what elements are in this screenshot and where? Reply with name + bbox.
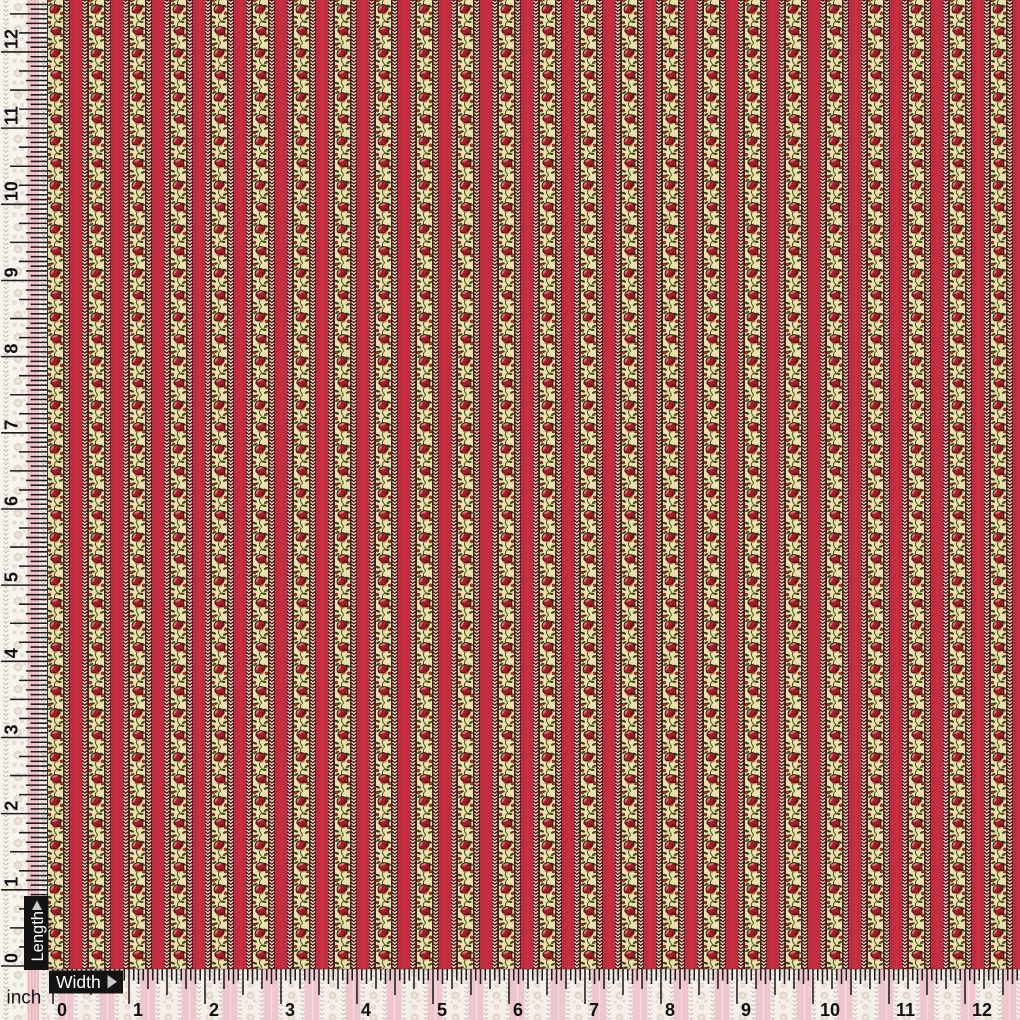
svg-text:12: 12	[2, 29, 22, 49]
svg-text:6: 6	[513, 1000, 523, 1020]
svg-text:8: 8	[665, 1000, 675, 1020]
svg-text:4: 4	[2, 648, 22, 658]
svg-text:7: 7	[2, 420, 22, 430]
svg-text:0: 0	[57, 1000, 67, 1020]
svg-text:12: 12	[972, 1000, 992, 1020]
svg-text:4: 4	[361, 1000, 371, 1020]
svg-text:inch: inch	[7, 988, 42, 1009]
svg-text:5: 5	[2, 572, 22, 582]
svg-text:9: 9	[2, 267, 22, 277]
svg-text:2: 2	[2, 801, 22, 811]
svg-text:10: 10	[820, 1000, 840, 1020]
svg-text:9: 9	[741, 1000, 751, 1020]
svg-text:Width: Width	[56, 972, 101, 992]
svg-text:2: 2	[209, 1000, 219, 1020]
svg-text:6: 6	[2, 496, 22, 506]
svg-text:11: 11	[2, 106, 22, 125]
svg-text:3: 3	[285, 1000, 295, 1020]
svg-text:1: 1	[133, 1000, 143, 1020]
svg-text:11: 11	[896, 1000, 915, 1020]
svg-text:1: 1	[2, 877, 22, 887]
svg-text:8: 8	[2, 344, 22, 354]
svg-text:7: 7	[589, 1000, 599, 1020]
svg-text:0: 0	[2, 953, 22, 963]
svg-text:Length: Length	[29, 911, 47, 961]
svg-text:5: 5	[437, 1000, 447, 1020]
svg-text:10: 10	[2, 181, 22, 201]
svg-text:3: 3	[2, 724, 22, 734]
